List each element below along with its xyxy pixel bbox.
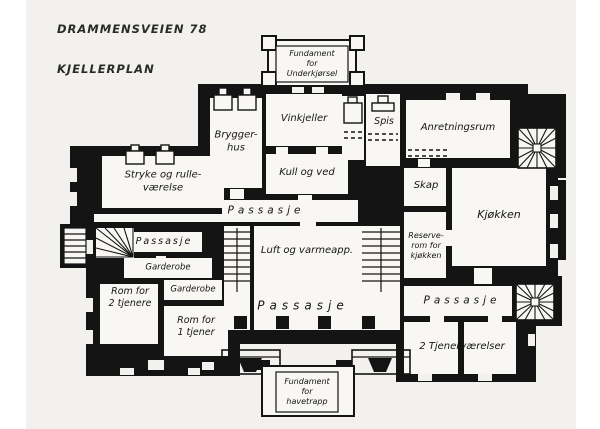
corridor-nord <box>222 200 358 222</box>
room-1-tjener <box>164 306 228 356</box>
stair-icon-porch <box>64 228 86 264</box>
spiral-stair-icon-right <box>516 284 554 320</box>
room-skap <box>404 168 446 206</box>
room-vinkjeller <box>266 94 342 146</box>
room-bryggerhus <box>210 98 262 188</box>
central-hall <box>254 226 362 330</box>
floor-plan-page: DRAMMENSVEIEN 78 KJELLERPLAN Fundament f… <box>0 0 600 429</box>
spiral-stair-icon-topright <box>518 128 556 168</box>
corridor-ost <box>404 286 512 316</box>
fundament-top-structure <box>262 36 364 86</box>
room-west-seam <box>94 214 234 222</box>
room-2-tjenere <box>100 284 158 344</box>
floor-plan-drawing <box>0 0 600 429</box>
room-reserverom <box>404 212 446 278</box>
room-garderobe-nedre <box>164 280 222 300</box>
room-anretningsrum <box>406 100 510 158</box>
room-kjokken <box>452 168 546 266</box>
fundament-bottom-structure <box>262 366 354 416</box>
room-garderobe-ovre <box>124 258 212 278</box>
tjener-divider-wall <box>458 322 464 374</box>
room-kull-og-ved <box>266 154 348 194</box>
